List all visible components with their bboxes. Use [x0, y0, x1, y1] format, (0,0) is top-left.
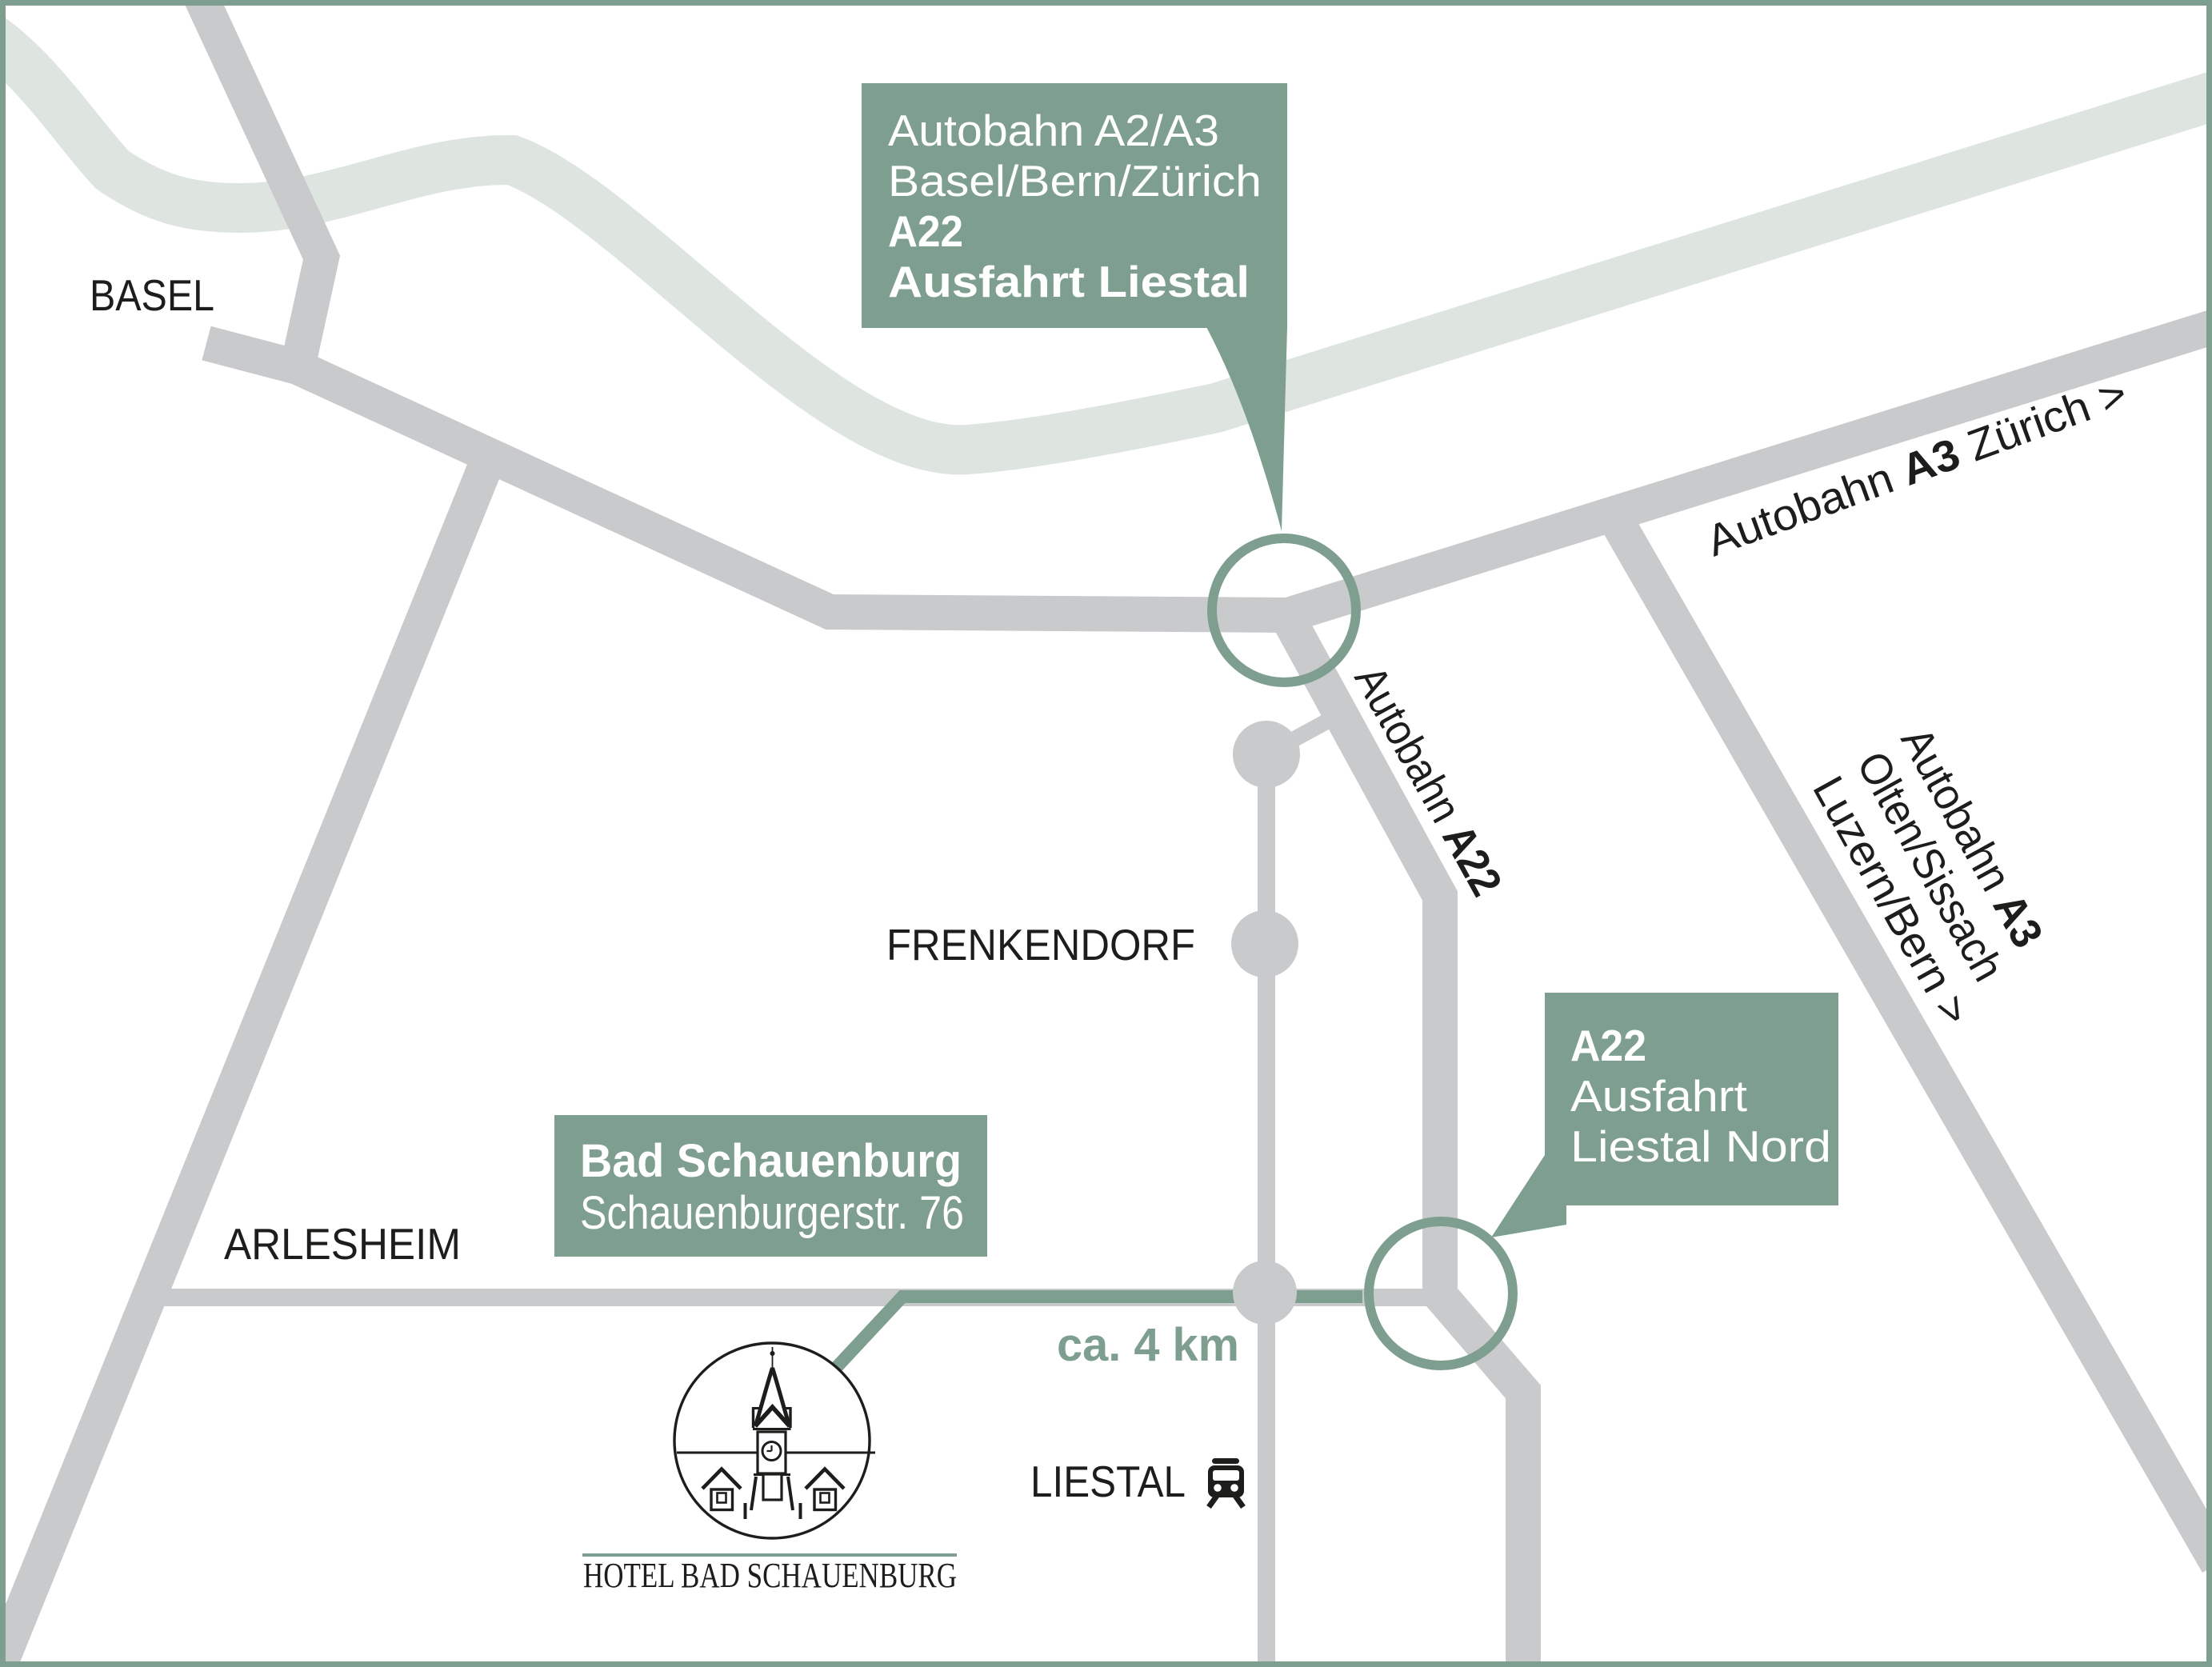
svg-text:A22: A22 [1570, 1021, 1646, 1070]
svg-text:BASEL: BASEL [90, 270, 214, 320]
svg-text:Basel/Bern/Zürich: Basel/Bern/Zürich [888, 156, 1262, 206]
svg-text:ca. 4 km: ca. 4 km [1057, 1319, 1239, 1371]
svg-text:Ausfahrt: Ausfahrt [1570, 1071, 1747, 1121]
svg-text:FRENKENDORF: FRENKENDORF [886, 920, 1195, 969]
svg-text:LIESTAL: LIESTAL [1030, 1457, 1186, 1506]
svg-text:Ausfahrt Liestal: Ausfahrt Liestal [888, 257, 1250, 306]
svg-text:Liestal Nord: Liestal Nord [1570, 1121, 1831, 1171]
svg-text:Schauenburgerstr. 76: Schauenburgerstr. 76 [580, 1187, 964, 1239]
svg-text:Autobahn A2/A3: Autobahn A2/A3 [888, 106, 1219, 155]
svg-text:ARLESHEIM: ARLESHEIM [224, 1219, 461, 1269]
svg-text:HOTEL BAD SCHAUENBURG: HOTEL BAD SCHAUENBURG [583, 1556, 957, 1595]
svg-text:Bad Schauenburg: Bad Schauenburg [580, 1135, 962, 1187]
svg-text:A22: A22 [888, 206, 963, 256]
